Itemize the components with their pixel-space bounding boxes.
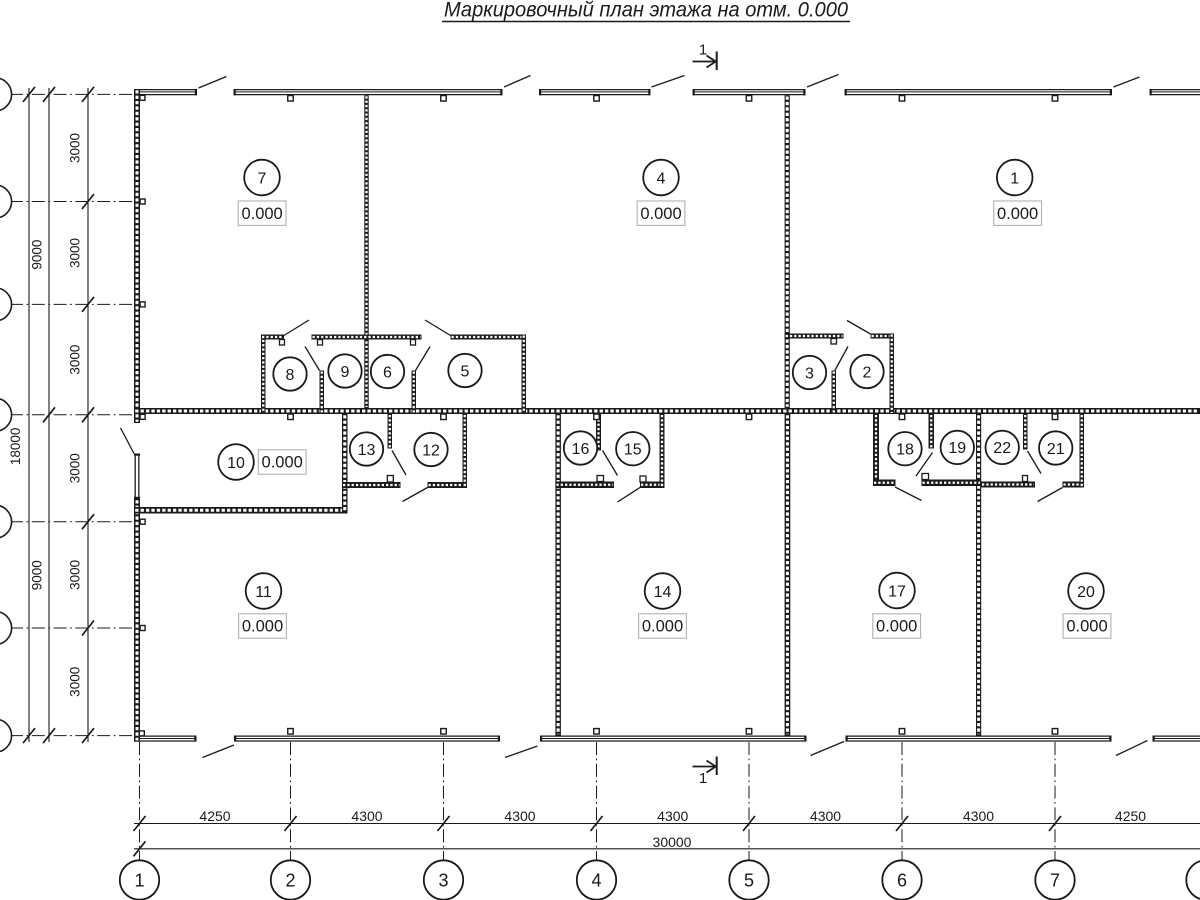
svg-text:9000: 9000 xyxy=(30,240,45,270)
svg-text:3000: 3000 xyxy=(68,133,83,163)
svg-text:8: 8 xyxy=(286,367,295,384)
svg-text:6: 6 xyxy=(897,870,907,890)
svg-text:16: 16 xyxy=(572,441,590,458)
svg-text:18000: 18000 xyxy=(8,428,23,466)
svg-text:20: 20 xyxy=(1077,584,1095,601)
svg-text:0.000: 0.000 xyxy=(642,618,683,636)
svg-text:7: 7 xyxy=(258,170,267,187)
svg-text:2: 2 xyxy=(285,870,295,890)
svg-text:3: 3 xyxy=(438,870,448,890)
svg-text:1: 1 xyxy=(699,770,707,787)
svg-text:0.000: 0.000 xyxy=(997,205,1038,223)
svg-text:3000: 3000 xyxy=(68,453,83,483)
svg-text:3: 3 xyxy=(805,365,814,382)
svg-text:9000: 9000 xyxy=(30,560,45,590)
svg-text:7: 7 xyxy=(1050,870,1060,890)
svg-text:3000: 3000 xyxy=(68,560,83,590)
svg-text:17: 17 xyxy=(888,583,906,600)
svg-text:30000: 30000 xyxy=(653,834,692,850)
svg-text:2: 2 xyxy=(863,364,872,381)
svg-text:5: 5 xyxy=(744,870,754,890)
svg-text:0.000: 0.000 xyxy=(241,205,282,223)
svg-text:4300: 4300 xyxy=(504,808,535,824)
svg-text:6: 6 xyxy=(383,364,392,381)
svg-text:22: 22 xyxy=(993,440,1011,457)
svg-text:4: 4 xyxy=(657,170,666,187)
svg-text:9: 9 xyxy=(341,364,350,381)
svg-text:19: 19 xyxy=(948,440,966,457)
svg-text:0.000: 0.000 xyxy=(876,618,917,636)
svg-text:5: 5 xyxy=(461,363,470,380)
svg-text:4250: 4250 xyxy=(1115,808,1146,824)
svg-text:12: 12 xyxy=(422,442,440,459)
svg-text:4300: 4300 xyxy=(963,808,994,824)
svg-text:4300: 4300 xyxy=(657,808,688,824)
svg-text:4300: 4300 xyxy=(810,808,841,824)
svg-text:18: 18 xyxy=(896,442,914,459)
svg-text:Маркировочный план этажа на от: Маркировочный план этажа на отм. 0.000 xyxy=(444,0,848,22)
svg-text:0.000: 0.000 xyxy=(1066,618,1107,636)
svg-text:1: 1 xyxy=(134,870,144,890)
svg-text:4: 4 xyxy=(591,870,601,890)
svg-text:11: 11 xyxy=(255,584,272,601)
svg-text:3000: 3000 xyxy=(68,238,83,268)
svg-text:1: 1 xyxy=(699,42,707,59)
svg-text:4250: 4250 xyxy=(199,808,230,824)
svg-text:14: 14 xyxy=(654,584,672,601)
svg-text:13: 13 xyxy=(358,442,376,459)
svg-text:0.000: 0.000 xyxy=(640,205,681,223)
svg-text:3000: 3000 xyxy=(68,345,83,375)
svg-text:4300: 4300 xyxy=(351,808,382,824)
svg-text:10: 10 xyxy=(227,455,245,472)
svg-text:1: 1 xyxy=(1010,170,1019,187)
svg-text:21: 21 xyxy=(1047,441,1065,458)
svg-text:0.000: 0.000 xyxy=(242,618,283,636)
svg-text:0.000: 0.000 xyxy=(262,454,303,472)
svg-text:15: 15 xyxy=(624,442,642,459)
svg-text:3000: 3000 xyxy=(68,667,83,697)
